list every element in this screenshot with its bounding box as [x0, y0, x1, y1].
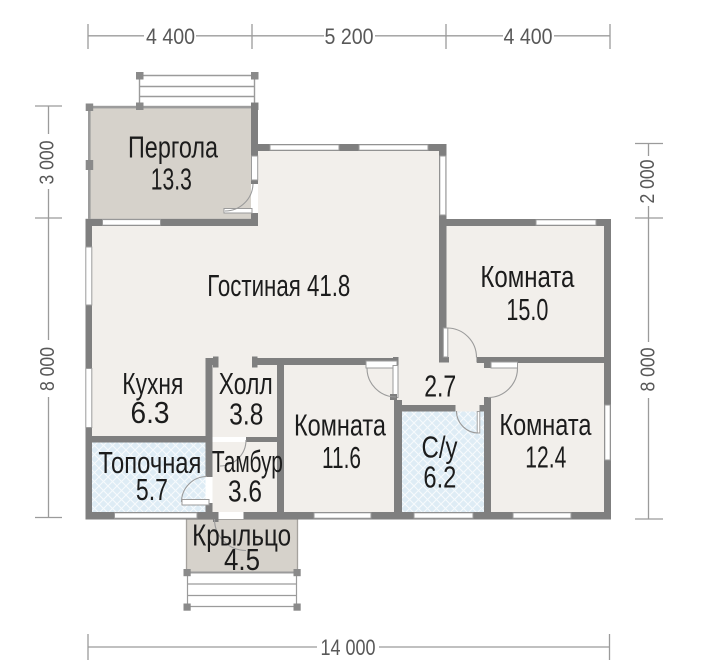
svg-text:6.3: 6.3 — [131, 395, 170, 430]
svg-text:8 000: 8 000 — [37, 347, 59, 391]
svg-text:2 000: 2 000 — [637, 160, 659, 204]
svg-text:5 200: 5 200 — [325, 24, 374, 49]
svg-text:4 400: 4 400 — [504, 24, 553, 49]
svg-text:Комната: Комната — [294, 408, 387, 443]
svg-text:6.2: 6.2 — [423, 459, 456, 494]
svg-text:Гостиная 41.8: Гостиная 41.8 — [207, 268, 350, 303]
svg-text:5.7: 5.7 — [136, 472, 168, 507]
svg-text:14 000: 14 000 — [321, 635, 376, 660]
svg-text:15.0: 15.0 — [506, 292, 548, 327]
svg-text:13.3: 13.3 — [151, 161, 192, 196]
svg-text:Комната: Комната — [480, 259, 575, 294]
svg-text:3.6: 3.6 — [228, 474, 262, 509]
svg-text:11.6: 11.6 — [322, 440, 361, 475]
svg-text:Пергола: Пергола — [128, 130, 219, 165]
svg-text:4 400: 4 400 — [146, 24, 195, 49]
svg-text:2.7: 2.7 — [424, 369, 456, 404]
svg-text:3.8: 3.8 — [229, 397, 263, 432]
svg-text:12.4: 12.4 — [525, 439, 566, 474]
svg-text:Комната: Комната — [499, 407, 592, 442]
svg-text:3 000: 3 000 — [37, 141, 59, 185]
svg-text:4.5: 4.5 — [224, 542, 260, 577]
svg-text:8 000: 8 000 — [638, 348, 660, 392]
